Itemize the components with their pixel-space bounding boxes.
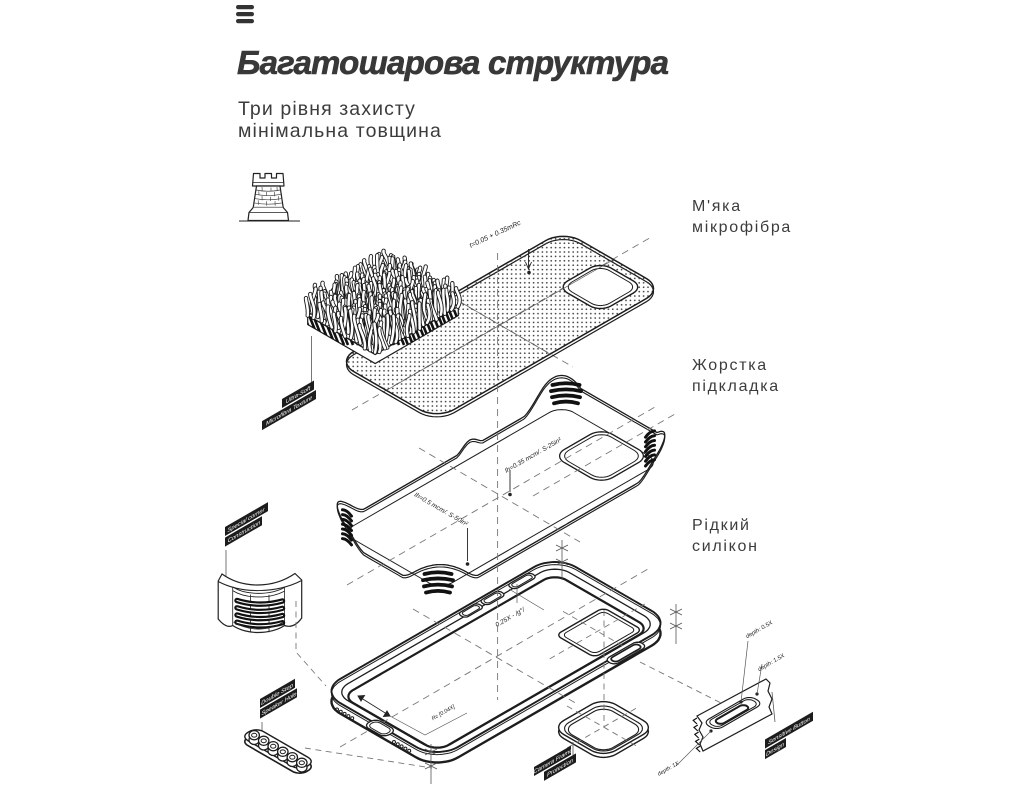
- svg-text:t=0.05 + 0.35mRc: t=0.05 + 0.35mRc: [469, 220, 523, 250]
- svg-text:depth: 1.5X: depth: 1.5X: [757, 653, 787, 674]
- svg-text:depth: 1X: depth: 1X: [657, 760, 681, 777]
- svg-text:depth: 0.5X: depth: 0.5X: [745, 620, 775, 641]
